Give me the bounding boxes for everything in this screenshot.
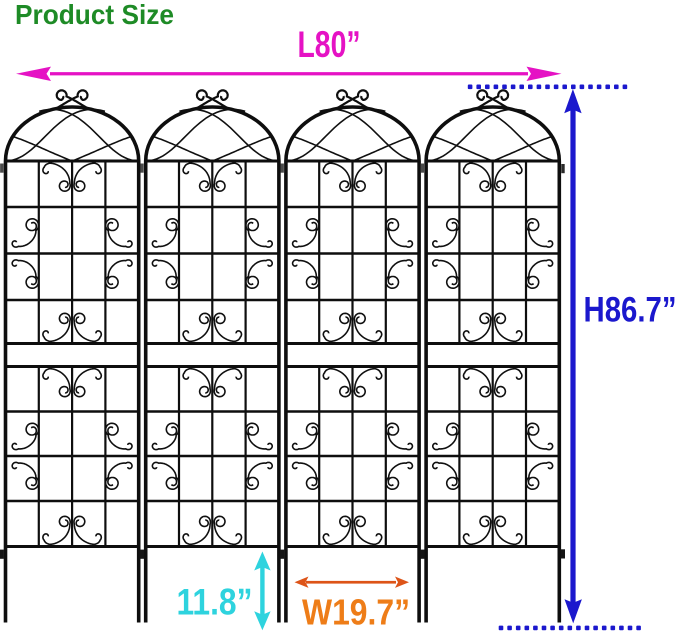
svg-text:11.8”: 11.8”: [177, 581, 253, 623]
svg-text:L80”: L80”: [298, 24, 361, 65]
svg-text:H86.7”: H86.7”: [584, 291, 677, 330]
svg-text:W19.7”: W19.7”: [302, 592, 410, 633]
svg-text:Product Size: Product Size: [15, 0, 174, 30]
